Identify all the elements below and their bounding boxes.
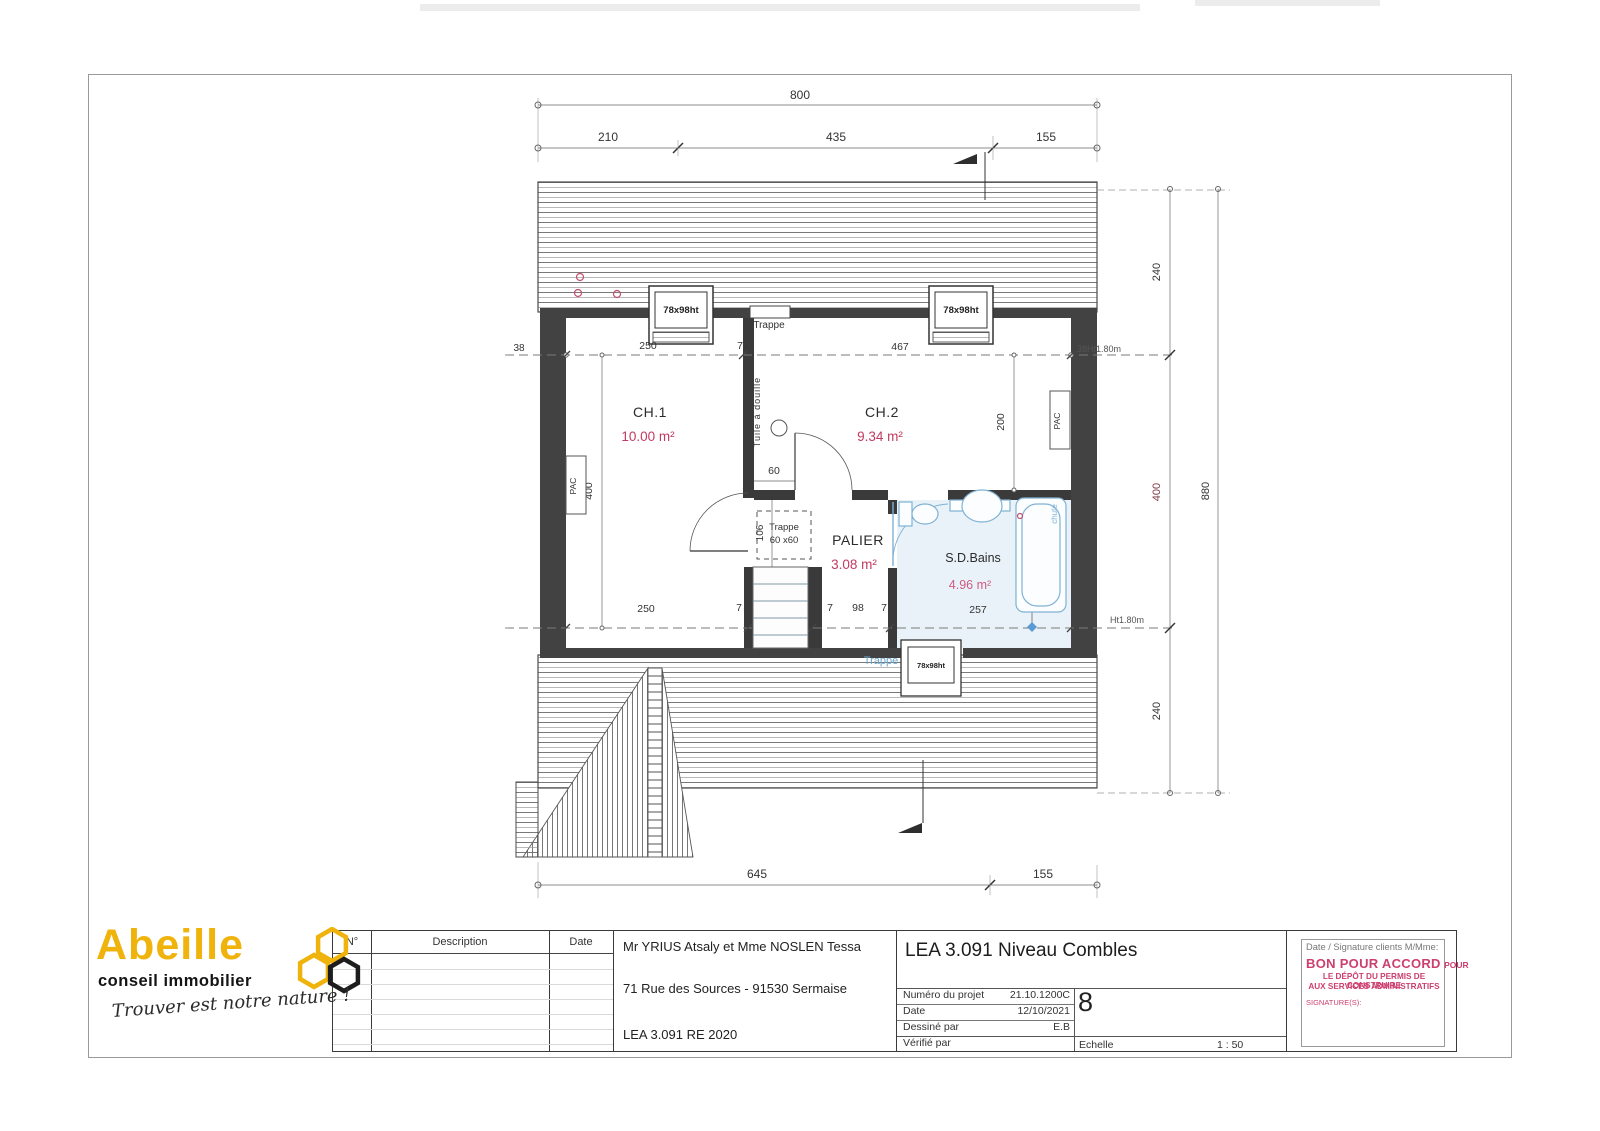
- sheet-number: 8: [1078, 987, 1093, 1018]
- room-name-ch2: CH.2: [865, 404, 899, 420]
- scale-value: 1 : 50: [1217, 1039, 1243, 1051]
- room-area-palier: 3.08 m²: [831, 557, 877, 572]
- wall-west: [540, 308, 566, 658]
- dim-top-seg-2: 155: [1036, 130, 1056, 144]
- dim-int-top-1: 7: [737, 340, 743, 352]
- revision-row: [333, 969, 613, 970]
- room-area-ch2: 9.34 m²: [857, 429, 903, 444]
- revision-row: [333, 999, 613, 1000]
- signature-block: Date / Signature clients M/Mme: BON POUR…: [1286, 931, 1456, 1051]
- company-logo: Abeille conseil immobilier Trouver est n…: [90, 915, 350, 1030]
- logo-subtitle: conseil immobilier: [98, 972, 252, 991]
- wall-north: [993, 308, 1071, 318]
- revision-header-description: Description: [371, 931, 549, 953]
- project-reference: LEA 3.091 RE 2020: [623, 1027, 737, 1042]
- field-row: Numéro du projet 21.10.1200C: [897, 989, 1074, 1005]
- revision-row: [333, 1014, 613, 1015]
- revision-row: [333, 984, 613, 985]
- wall-north: [566, 308, 649, 318]
- pac-label: PAC: [1052, 413, 1062, 430]
- dim-int-bottom-6: 257: [969, 604, 987, 616]
- toilet-tank: [899, 502, 912, 526]
- dim-int-bottom-0: 250: [637, 603, 655, 615]
- window-size-label: 78x98ht: [663, 305, 699, 316]
- revision-row: [333, 1044, 613, 1045]
- dim-int-top-0: 250: [639, 340, 657, 352]
- divider: [333, 953, 613, 954]
- dim-right-seg-0: 240: [1151, 263, 1163, 281]
- divider: [371, 931, 372, 1051]
- scale-label: Echelle: [1079, 1039, 1113, 1051]
- wall-east: [1071, 308, 1097, 658]
- dim-int-bottom-1: 7: [736, 602, 742, 614]
- signature-field-label: SIGNATURE(S):: [1306, 998, 1361, 1007]
- staircase: [753, 567, 808, 648]
- logo-brand-text: Abeille: [96, 921, 244, 970]
- field-value: E.B: [1053, 1021, 1070, 1033]
- height-mark-bottom: Ht1.80m: [1110, 615, 1144, 625]
- dim-bottom-seg-0: 645: [747, 867, 767, 881]
- dim-int-top-2: 467: [891, 341, 909, 353]
- roof-eave-strip: [516, 782, 538, 857]
- wall-bath-west: [888, 568, 897, 648]
- roof-ridge: [648, 668, 662, 857]
- field-value: 21.10.1200C: [1010, 989, 1070, 1001]
- field-row: Date 12/10/2021: [897, 1005, 1074, 1021]
- field-row: Vérifié par: [897, 1037, 1074, 1053]
- divider: [1074, 988, 1075, 1051]
- field-label: Dessiné par: [903, 1021, 959, 1033]
- dim-right-overall: 880: [1200, 482, 1212, 500]
- client-block: Mr YRIUS Atsaly et Mme NOSLEN Tessa 71 R…: [613, 931, 896, 1051]
- client-address: 71 Rue des Sources - 91530 Sermaise: [623, 981, 847, 996]
- wall-north: [713, 308, 929, 318]
- toilet-bowl: [912, 504, 938, 524]
- trappe-box-size: 60 x60: [770, 535, 799, 546]
- field-row: Dessiné par E.B: [897, 1021, 1074, 1037]
- drawing-sheet: 78x98ht 78x98ht Trappe 400 200 106 60 19…: [0, 0, 1600, 1131]
- dim-left-wall: 38: [513, 343, 525, 354]
- roof-window-1: 78x98ht: [649, 286, 713, 344]
- dim-ch2-depth: 200: [995, 413, 1007, 431]
- door-swing-ch2: [795, 433, 852, 490]
- dim-int-bottom-4: 98: [852, 602, 864, 614]
- window-size-label: 78x98ht: [917, 661, 945, 670]
- sink-basin: [962, 490, 1002, 522]
- trappe-label-top: Trappe: [753, 320, 785, 331]
- room-area-ch1: 10.00 m²: [621, 429, 675, 444]
- pac-label: PAC: [568, 478, 578, 495]
- dim-int-bottom-5: 7: [881, 602, 887, 614]
- height-mark-top: 38Ht1.80m: [1077, 344, 1121, 354]
- dim-right-seg-2: 240: [1151, 702, 1163, 720]
- dim-bottom-seg-1: 155: [1033, 867, 1053, 881]
- window-size-label: 78x98ht: [943, 305, 979, 316]
- signature-box: Date / Signature clients M/Mme: BON POUR…: [1301, 939, 1445, 1047]
- title-block: N° Description Date Mr YRIUS Atsaly et M…: [332, 930, 1457, 1052]
- field-label: Vérifié par: [903, 1037, 951, 1049]
- field-label: Date: [903, 1005, 925, 1017]
- ceiling-hatch-opening: [750, 306, 790, 318]
- dim-top-seg-0: 210: [598, 130, 618, 144]
- dim-tick: [1012, 353, 1016, 357]
- approval-stamp-suffix: POUR: [1444, 960, 1469, 970]
- dim-top-overall: 800: [790, 88, 810, 102]
- tuile-label: Tuile à douille: [752, 377, 762, 447]
- client-names: Mr YRIUS Atsaly et Mme NOSLEN Tessa: [623, 939, 861, 954]
- field-value: 12/10/2021: [1017, 1005, 1070, 1017]
- approval-stamp-line3: AUX SERVICES ADMINISTRATIFS: [1304, 982, 1444, 991]
- dim-passage: 60: [768, 465, 780, 477]
- dim-tick: [600, 626, 604, 630]
- wall-south: [566, 648, 903, 658]
- dim-top-seg-1: 435: [826, 130, 846, 144]
- roof-window-3: 78x98ht: [901, 640, 961, 696]
- room-name-ch1: CH.1: [633, 404, 667, 420]
- room-name-sdb: S.D.Bains: [945, 551, 1001, 565]
- signature-header: Date / Signature clients M/Mme:: [1306, 942, 1438, 952]
- dim-int-bottom-3: 7: [827, 602, 833, 614]
- dim-tick: [1012, 488, 1016, 492]
- wall-south: [963, 648, 1071, 658]
- tuile-symbol: [771, 420, 787, 436]
- revision-header-date: Date: [549, 931, 613, 953]
- project-block: LEA 3.091 Niveau Combles Numéro du proje…: [896, 931, 1286, 1051]
- chute-label: chute: [1050, 504, 1059, 524]
- wall-partition-h: [852, 490, 888, 500]
- section-marker-top: [953, 154, 977, 164]
- door-swing-ch1: [690, 493, 748, 551]
- room-name-palier: PALIER: [832, 532, 884, 548]
- field-label: Numéro du projet: [903, 989, 984, 1001]
- drawing-title: LEA 3.091 Niveau Combles: [905, 940, 1137, 962]
- revision-row: [333, 1029, 613, 1030]
- revision-table: N° Description Date: [333, 931, 613, 1051]
- wall-partition-h: [754, 490, 795, 500]
- section-marker-bottom: [898, 823, 922, 833]
- stair-wall-right: [808, 567, 822, 648]
- dim-tick: [600, 353, 604, 357]
- dim-right-seg-1: 400: [1151, 483, 1163, 501]
- trappe-box-label: Trappe: [769, 522, 799, 533]
- roof-window-2: 78x98ht: [929, 286, 993, 344]
- trappe-label-bottom: Trappe: [864, 655, 898, 667]
- stair-wall-left: [744, 567, 753, 648]
- divider: [549, 931, 550, 1051]
- approval-stamp-main: BON POUR ACCORD: [1306, 956, 1441, 971]
- room-area-sdb: 4.96 m²: [949, 578, 991, 592]
- roof-top: [538, 182, 1097, 312]
